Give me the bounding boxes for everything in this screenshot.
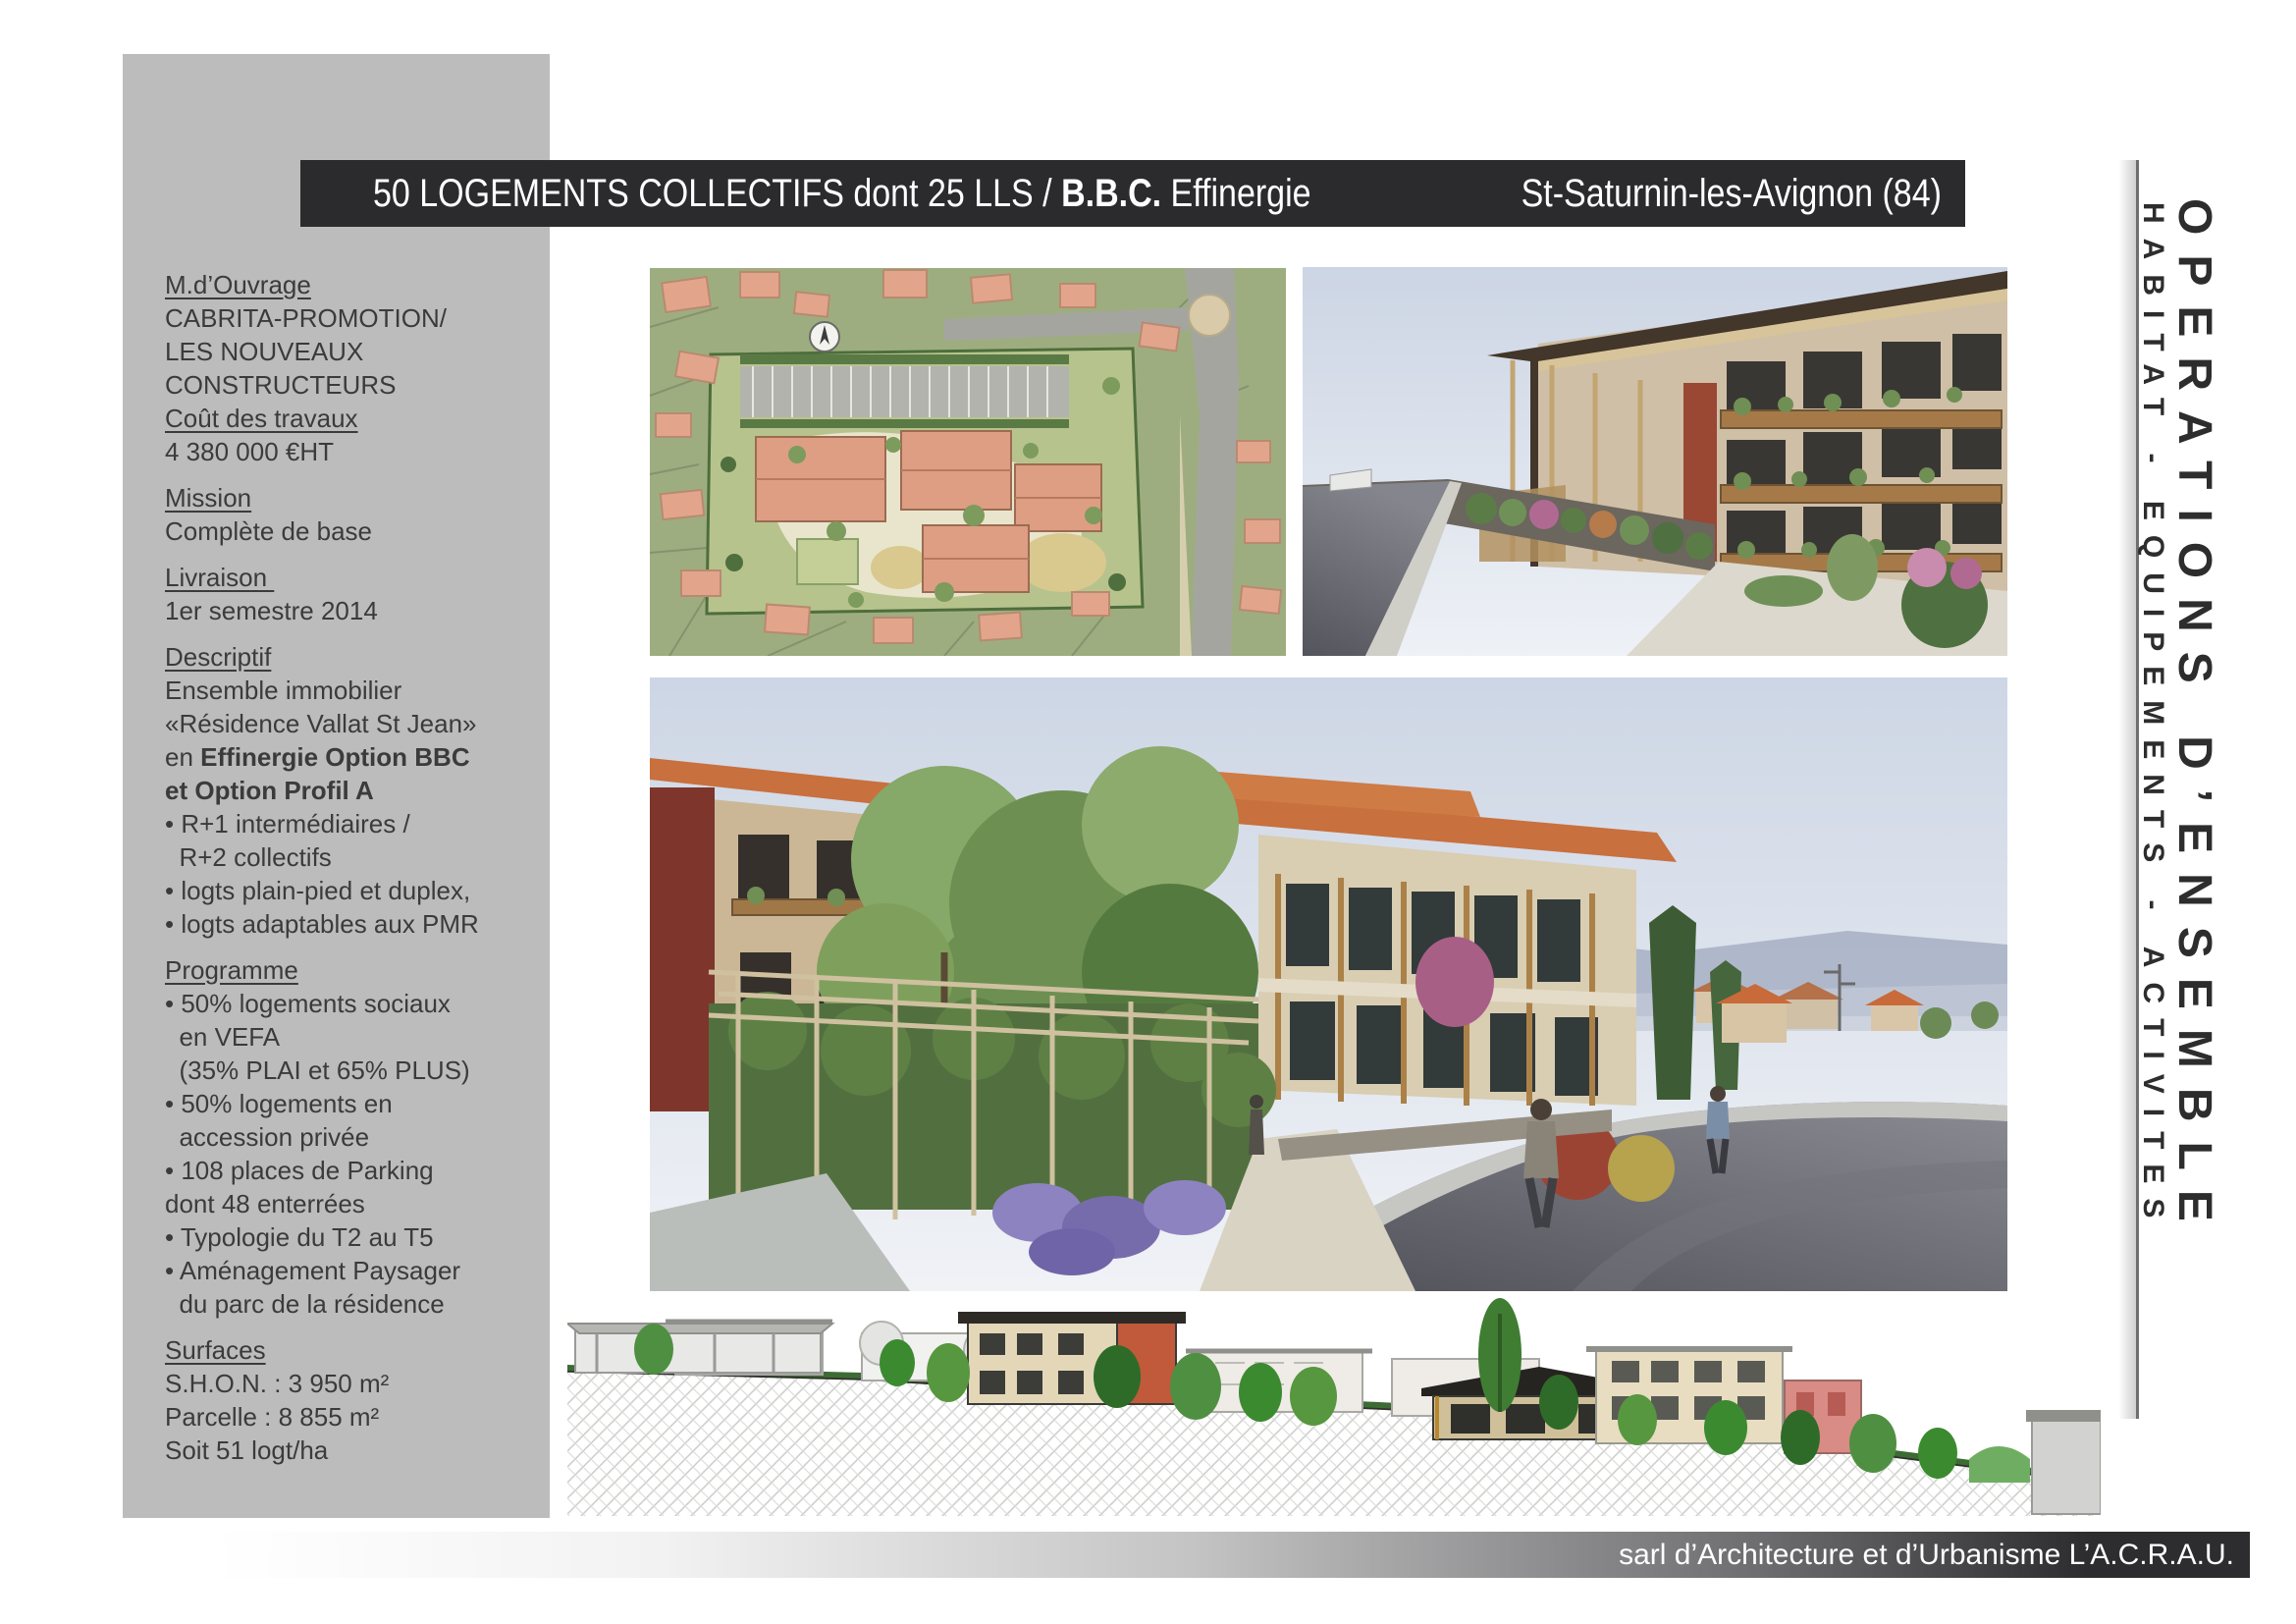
sidebar-line: et Option Profil A [165,774,540,807]
sidebar-heading: Programme [165,953,540,987]
sidebar-line: • Aménagement Paysager [165,1254,540,1287]
sidebar-blocks: M.d’OuvrageCABRITA-PROMOTION/LES NOUVEAU… [165,268,540,1480]
project-info-sidebar: M.d’OuvrageCABRITA-PROMOTION/LES NOUVEAU… [123,54,550,1518]
sidebar-line: • 50% logements en [165,1087,540,1120]
sidebar-heading: Surfaces [165,1333,540,1367]
sidebar-line: • 108 places de Parking [165,1154,540,1187]
sidebar-line: accession privée [165,1120,540,1154]
sidebar-block: M.d’OuvrageCABRITA-PROMOTION/LES NOUVEAU… [165,268,540,468]
sidebar-heading: Descriptif [165,640,540,674]
sidebar-line: (35% PLAI et 65% PLUS) [165,1054,540,1087]
sidebar-line: Parcelle : 8 855 m² [165,1400,540,1434]
sidebar-line: LES NOUVEAUX [165,335,540,368]
title-location: St-Saturnin-les-Avignon (84) [1522,160,1942,227]
elevation-building-a [958,1312,1186,1404]
vertical-banner-secondary: HABITAT - EQUIPEMENTS - ACTIVITES [2136,202,2169,1232]
sidebar-line: 1er semestre 2014 [165,594,540,627]
sidebar-line: • R+1 intermédiaires / [165,807,540,840]
sidebar-heading: Mission [165,481,540,514]
sidebar-line: Soit 51 logt/ha [165,1434,540,1467]
title-main: 50 LOGEMENTS COLLECTIFS dont 25 LLS / [373,172,1061,215]
sidebar-line: R+2 collectifs [165,840,540,874]
sidebar-block: DescriptifEnsemble immobilier«Résidence … [165,640,540,941]
title-effinergie: Effinergie [1161,172,1310,215]
sidebar-line: dont 48 enterrées [165,1187,540,1220]
elevation-drawing-figure [567,1294,2101,1516]
sidebar-line: en VEFA [165,1020,540,1054]
elevation-left-pavilion [567,1324,832,1373]
compass-icon [810,322,839,352]
page: { "title_bar": { "left_regular": "50 LOG… [0,0,2296,1624]
footer-credit-bar: sarl d’Architecture et d’Urbanisme L’A.C… [213,1532,2250,1578]
sidebar-line: • Typologie du T2 au T5 [165,1220,540,1254]
vertical-rule-shadow [2118,160,2136,1419]
sidebar-line: S.H.O.N. : 3 950 m² [165,1367,540,1400]
street-view-figure [1303,267,2007,656]
title-bbc: B.B.C. [1061,172,1161,215]
sidebar-line: en Effinergie Option BBC [165,740,540,774]
sidebar-heading: Livraison [165,561,540,594]
sidebar-line: CONSTRUCTEURS [165,368,540,402]
sidebar-line: «Résidence Vallat St Jean» [165,707,540,740]
sidebar-block: Programme• 50% logements sociaux en VEFA… [165,953,540,1321]
sidebar-line: 4 380 000 €HT [165,435,540,468]
sidebar-block: Livraison 1er semestre 2014 [165,561,540,627]
sidebar-line: • logts adaptables aux PMR [165,907,540,941]
footer-credit-text: sarl d’Architecture et d’Urbanisme L’A.C… [1619,1539,2250,1571]
sidebar-heading: M.d’Ouvrage [165,268,540,301]
sidebar-line: • logts plain-pied et duplex, [165,874,540,907]
sidebar-block: SurfacesS.H.O.N. : 3 950 m²Parcelle : 8 … [165,1333,540,1467]
sidebar-line: • 50% logements sociaux [165,987,540,1020]
sidebar-line: Ensemble immobilier [165,674,540,707]
title-bar: 50 LOGEMENTS COLLECTIFS dont 25 LLS / B.… [300,160,1965,227]
page-title: 50 LOGEMENTS COLLECTIFS dont 25 LLS / B.… [373,160,1311,227]
sidebar-block: MissionComplète de base [165,481,540,548]
sidebar-line: Complète de base [165,514,540,548]
sidebar-line: CABRITA-PROMOTION/ [165,301,540,335]
site-plan-figure [650,268,1286,656]
sidebar-heading: Coût des travaux [165,402,540,435]
main-render-figure [650,677,2007,1291]
sidebar-line: du parc de la résidence [165,1287,540,1321]
vertical-banner-primary: OPERATIONS D’ENSEMBLE [2167,198,2221,1241]
